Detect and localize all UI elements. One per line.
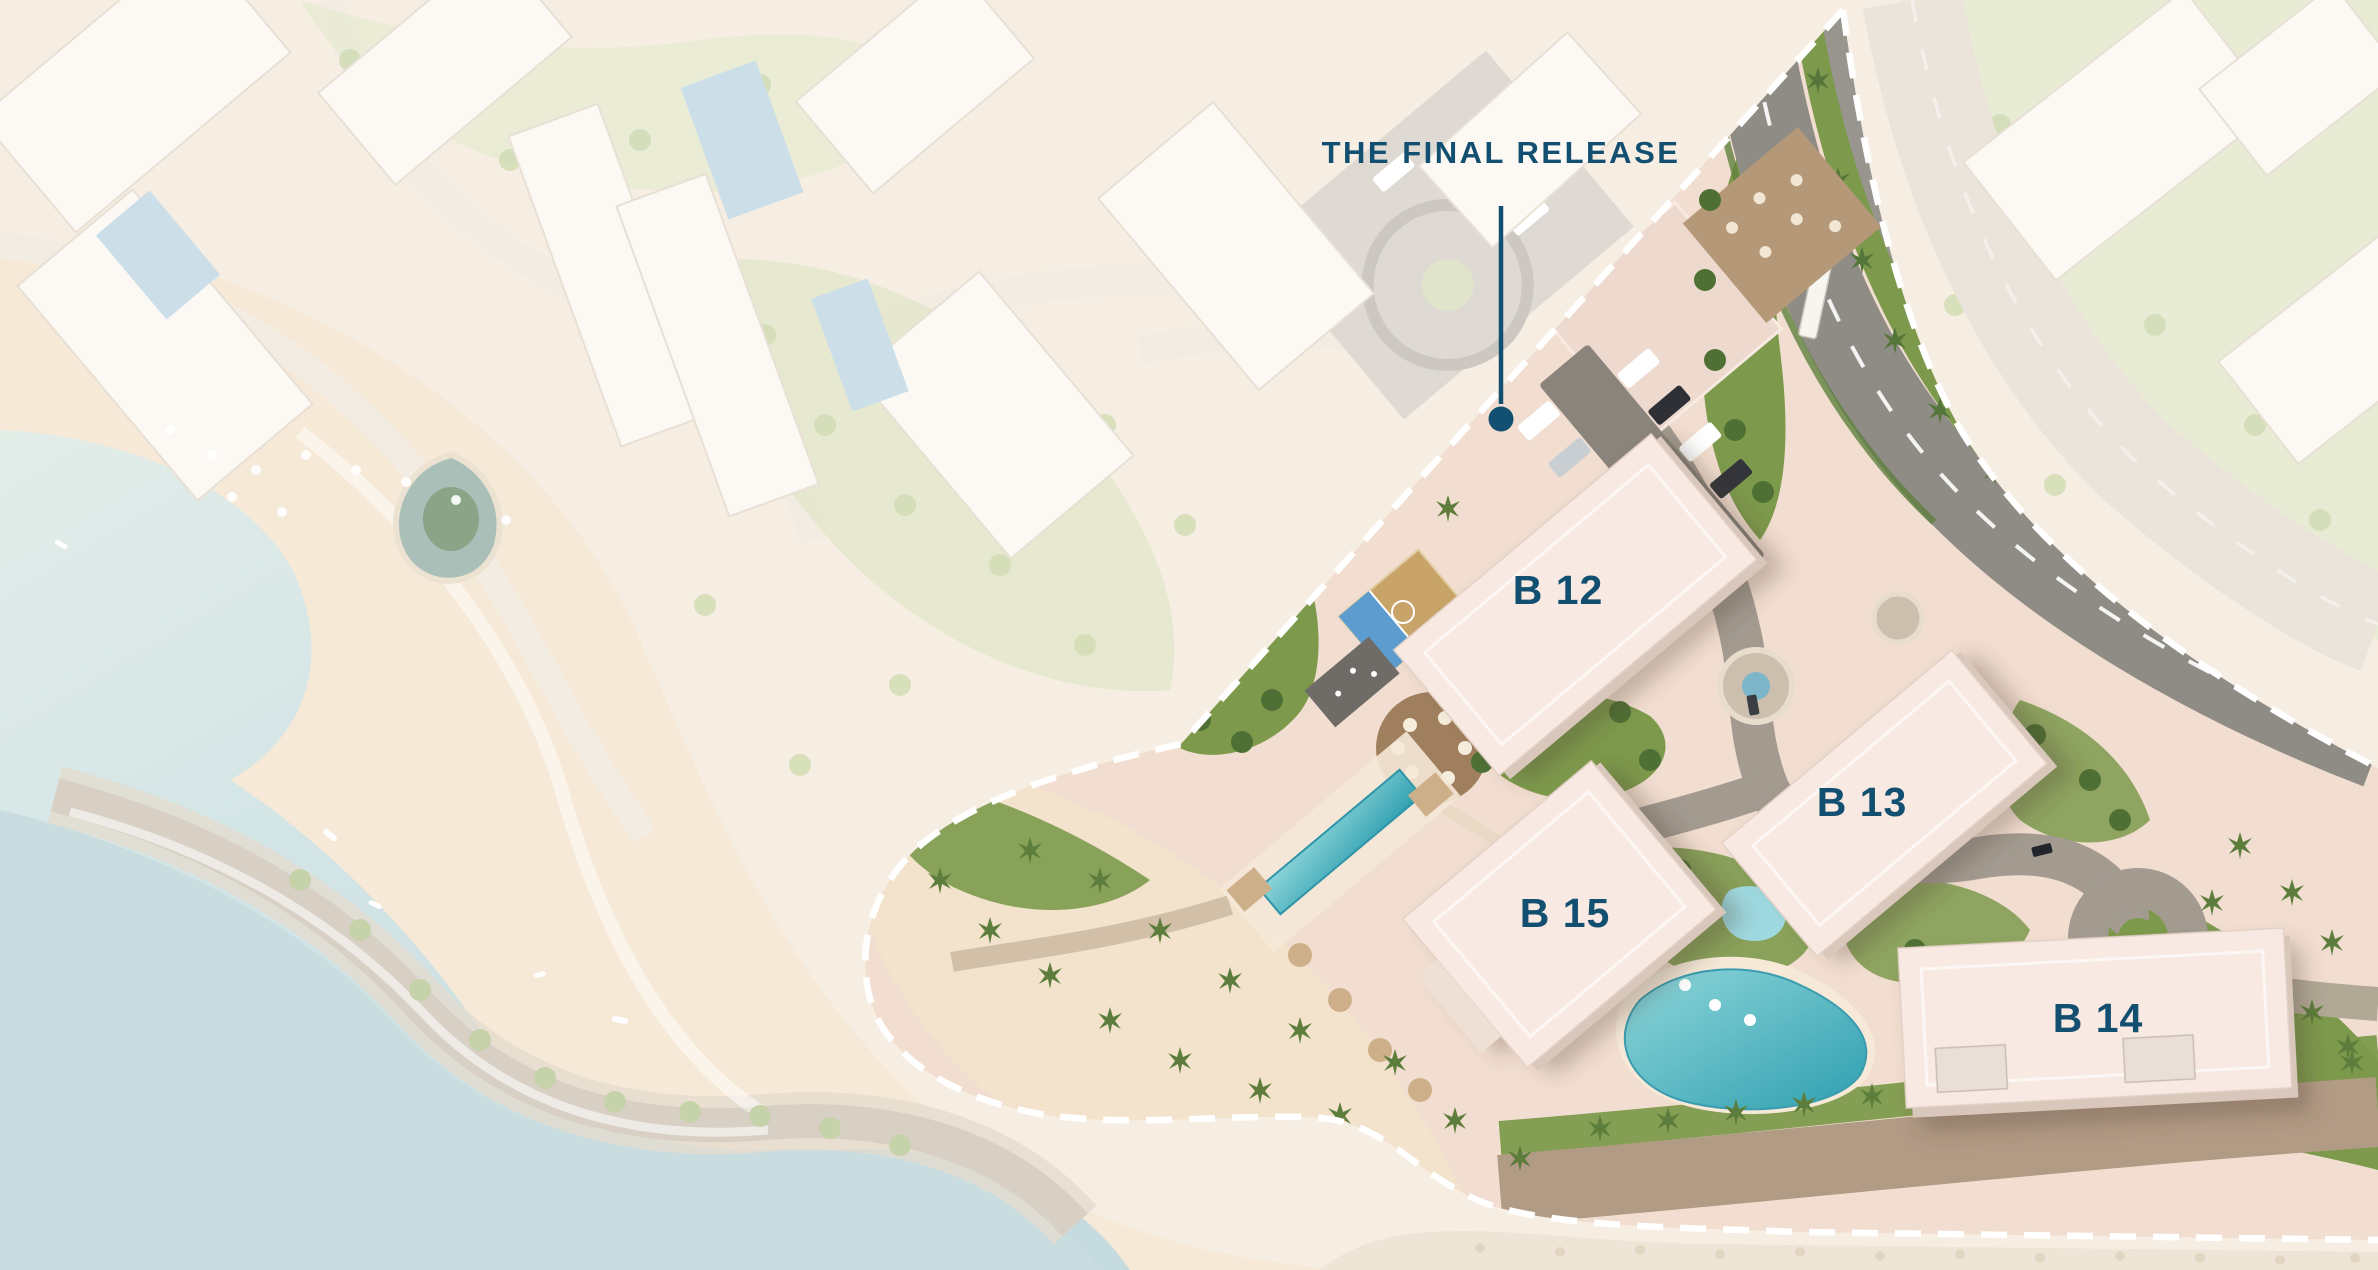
final-release-title: THE FINAL RELEASE	[1322, 135, 1681, 170]
leader-dot	[1489, 407, 1514, 432]
masterplan-page: THE FINAL RELEASE B 12 B 13 B 15 B 14	[0, 0, 2378, 1270]
label-b12: B 12	[1513, 567, 1604, 613]
label-b14: B 14	[2053, 995, 2144, 1041]
masterplan-rendering: THE FINAL RELEASE B 12 B 13 B 15 B 14	[0, 0, 2378, 1270]
label-b15: B 15	[1520, 890, 1611, 936]
label-b13: B 13	[1817, 779, 1908, 825]
dropoff-circle	[1874, 594, 1922, 642]
